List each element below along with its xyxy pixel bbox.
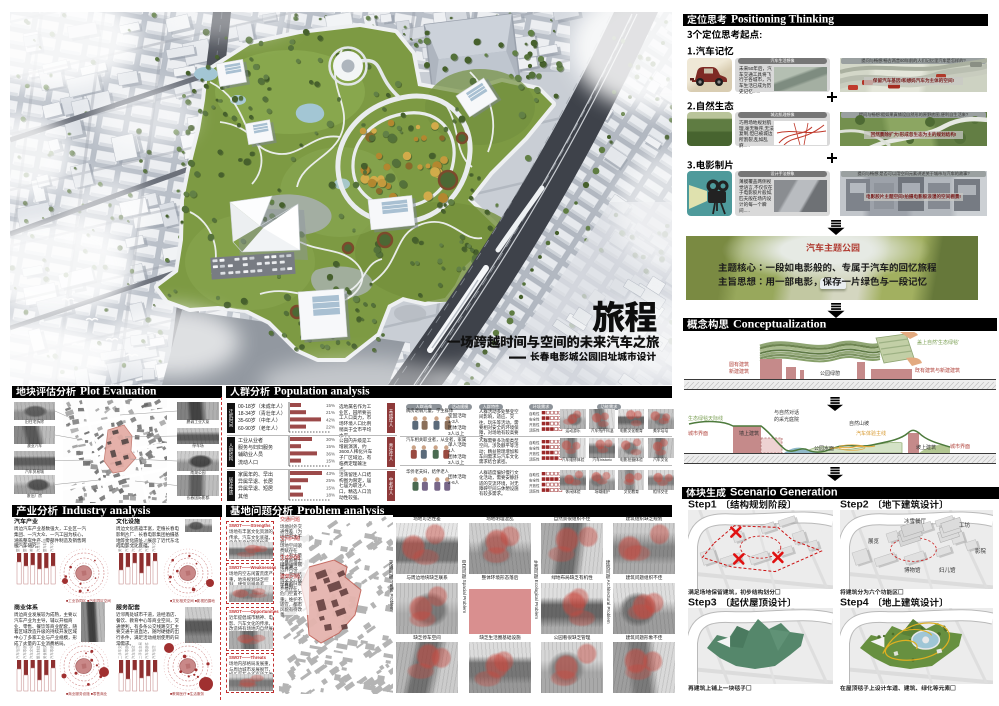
svg-text:安全性: 安全性: [529, 445, 540, 450]
svg-text:工坊: 工坊: [959, 521, 971, 529]
svg-text:活跃性: 活跃性: [529, 488, 540, 493]
svg-text:二手车交易: 二手车交易: [137, 641, 142, 659]
svg-text:美食餐饮: 美食餐饮: [117, 538, 122, 552]
svg-text:汽车信贷: 汽车信贷: [151, 645, 156, 659]
svg-text:博物馆: 博物馆: [904, 566, 921, 574]
svg-text:开放性: 开放性: [529, 422, 540, 427]
svg-text:汽车信贷: 汽车信贷: [137, 538, 142, 552]
svg-text:43%: 43%: [326, 471, 335, 476]
svg-text:安全性: 安全性: [529, 477, 540, 482]
svg-text:25%: 25%: [326, 478, 335, 483]
svg-text:汽车零部件: 汽车零部件: [124, 641, 129, 659]
svg-text:活跃性: 活跃性: [529, 456, 540, 461]
svg-text:汽车信贷: 汽车信贷: [131, 645, 136, 659]
svg-text:22%: 22%: [326, 425, 335, 430]
svg-text:开放性: 开放性: [529, 483, 540, 488]
svg-text:整车制造: 整车制造: [15, 538, 20, 552]
svg-text:汽车文化: 汽车文化: [151, 538, 156, 552]
svg-text:Step4: Step4: [840, 597, 869, 609]
svg-text:汽车信贷: 汽车信贷: [15, 645, 20, 659]
svg-text:Step2: Step2: [840, 499, 869, 511]
svg-text:15%: 15%: [326, 444, 335, 449]
svg-text:展览: 展览: [868, 537, 880, 545]
svg-text:自助性: 自助性: [529, 440, 540, 445]
svg-text:活跃性: 活跃性: [529, 427, 540, 432]
svg-text:42%: 42%: [326, 417, 335, 422]
svg-text:汽车文化: 汽车文化: [49, 538, 54, 552]
svg-text:二手车交易: 二手车交易: [117, 641, 122, 659]
svg-text:汽车零部件: 汽车零部件: [144, 641, 149, 659]
svg-text:美食餐饮: 美食餐饮: [29, 538, 34, 552]
svg-text:30%: 30%: [326, 437, 335, 442]
svg-text:汽车信贷: 汽车信贷: [144, 538, 149, 552]
svg-text:15%: 15%: [326, 459, 335, 464]
svg-text:15%: 15%: [326, 403, 335, 408]
svg-text:整车制造: 整车制造: [35, 645, 40, 659]
svg-text:Step1: Step1: [688, 499, 717, 511]
svg-text:整车制造: 整车制造: [22, 538, 27, 552]
svg-text:影院: 影院: [975, 547, 987, 555]
svg-text:安全性: 安全性: [529, 416, 540, 421]
svg-text:妇儿馆: 妇儿馆: [939, 566, 956, 574]
svg-text:汽车零部件: 汽车零部件: [22, 641, 27, 659]
svg-text:Step3: Step3: [688, 597, 717, 609]
svg-text:开放性: 开放性: [529, 451, 540, 456]
svg-text:21%: 21%: [326, 410, 335, 415]
svg-text:汽车文化: 汽车文化: [29, 645, 34, 659]
svg-text:汽车信贷: 汽车信贷: [35, 538, 40, 552]
svg-text:冰雪餐厅: 冰雪餐厅: [904, 517, 927, 525]
svg-text:整车制造: 整车制造: [42, 538, 47, 552]
svg-text:36%: 36%: [326, 451, 335, 456]
svg-text:自助性: 自助性: [529, 472, 540, 477]
svg-text:15%: 15%: [326, 485, 335, 490]
svg-text:汽车零部件: 汽车零部件: [124, 534, 129, 552]
svg-text::: :: [759, 30, 762, 41]
svg-text:汽车零部件: 汽车零部件: [49, 641, 54, 659]
svg-text:自助性: 自助性: [529, 411, 540, 416]
svg-text:汽车信贷: 汽车信贷: [131, 538, 136, 552]
svg-text:美食餐饮: 美食餐饮: [42, 645, 47, 659]
svg-text:18%: 18%: [326, 493, 335, 498]
